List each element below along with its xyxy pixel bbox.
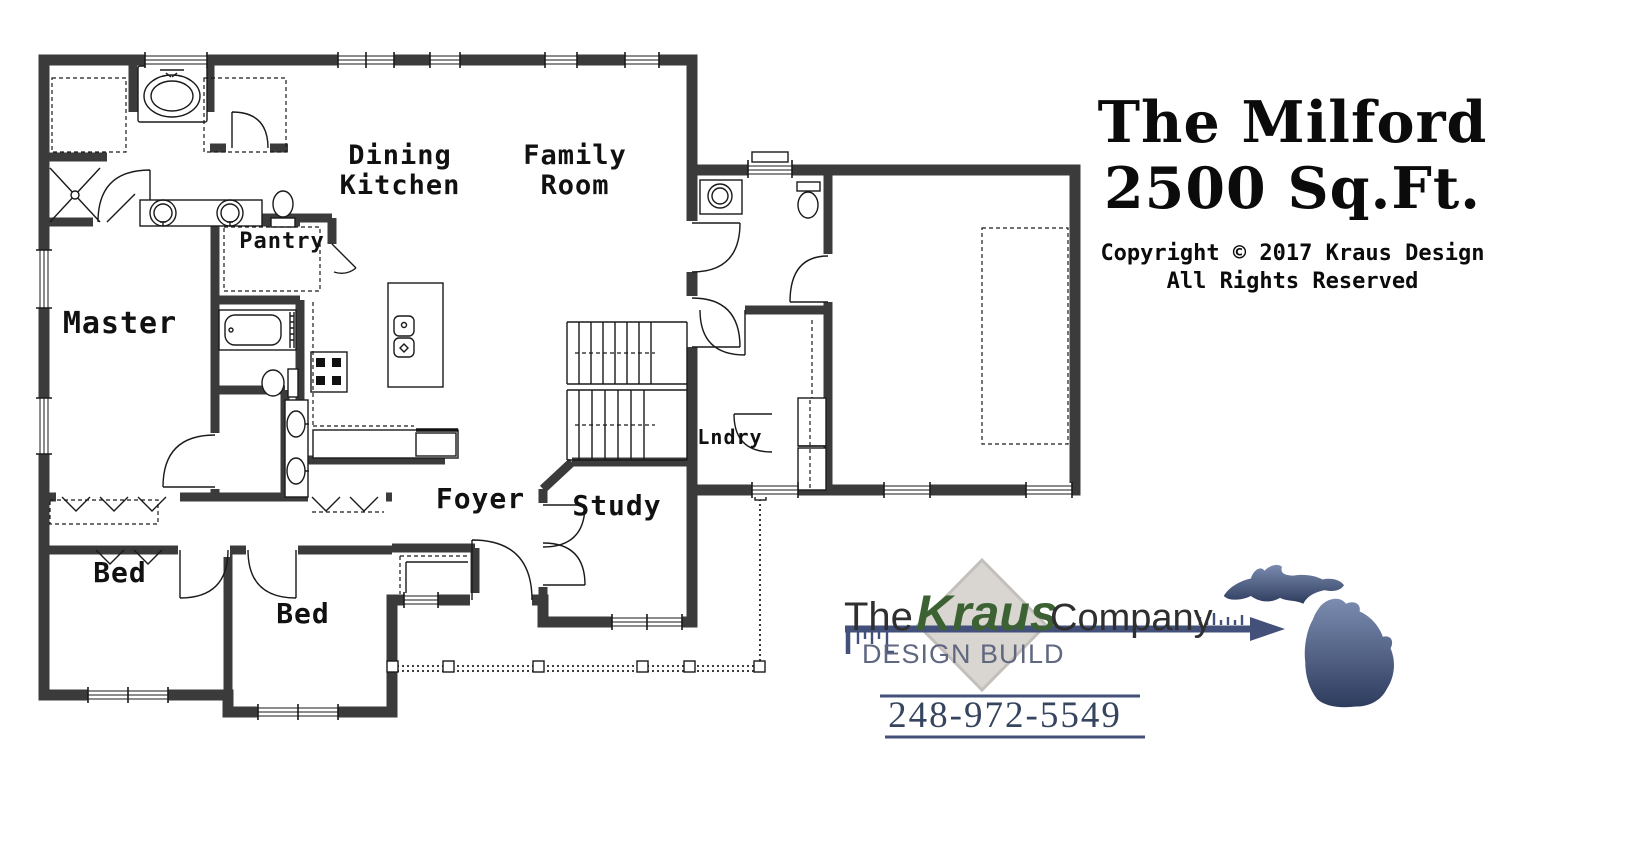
window [748,152,792,178]
toilet [273,191,293,217]
room-label-study: Study [556,489,678,522]
hall-door-upper [692,223,740,272]
stairs [567,322,687,460]
plan-sqft: 2500 Sq.Ft. [1080,156,1505,222]
window [36,398,52,454]
dryer [798,448,826,490]
room-label-dining-kitchen: Dining Kitchen [305,141,495,201]
logo-word-the: The [844,595,913,639]
copyright-notice: Copyright © 2017 Kraus Design All Rights… [1080,240,1505,296]
logo-word-company: Company [1050,597,1213,639]
garage-storage-dashed [982,228,1068,444]
window [145,52,207,68]
window [88,687,168,703]
window [625,52,659,68]
title-block: The Milford 2500 Sq.Ft. Copyright © 2017… [1080,90,1505,296]
washer [798,398,826,446]
window [545,52,577,68]
closet-shelves-left [52,78,126,152]
bath-vanity [285,400,308,497]
kraus-company-logo: The Kraus Company DESIGN BUILD 248-972-5… [798,528,1460,778]
phone-number: 248-972-5549 [888,695,1122,736]
room-label-pantry: Pantry [230,229,334,254]
michigan-state-icon [1224,565,1394,707]
window [752,482,798,498]
floor-plan-page: Dining Kitchen Family Room Pantry Master… [0,0,1647,843]
window [612,614,682,630]
master-door [163,435,215,487]
window [430,52,460,68]
shower-drain [71,191,79,199]
kitchen-fixtures [311,283,458,458]
powder-toilet-tank [797,182,820,191]
room-label-laundry: Lndry [696,425,764,449]
window [404,592,438,608]
pantry-door [332,244,356,273]
window [884,482,930,498]
room-label-bed-right: Bed [255,597,351,630]
room-label-family-room: Family Room [480,141,670,201]
bed1-door [180,550,228,598]
counter [313,430,458,458]
logo-tagline: DESIGN BUILD [862,639,1065,669]
room-label-foyer: Foyer [418,482,543,515]
logo-word-kraus: Kraus [916,585,1058,641]
window [258,704,338,720]
closet-shelves-right [204,78,286,152]
powder-sink [700,180,742,214]
toilet2-tank [288,369,298,397]
window [338,52,394,68]
foyer-closet [400,556,468,594]
copyright-line1: Copyright © 2017 Kraus Design [1080,240,1505,268]
bed2-door [248,550,296,598]
room-label-bed-left: Bed [72,556,168,589]
window [1026,482,1072,498]
arrowhead-icon [1250,617,1285,641]
room-label-master: Master [40,306,200,341]
window [36,250,52,308]
plan-title: The Milford [1080,90,1505,156]
front-door [472,540,532,600]
copyright-line2: All Rights Reserved [1080,268,1505,296]
